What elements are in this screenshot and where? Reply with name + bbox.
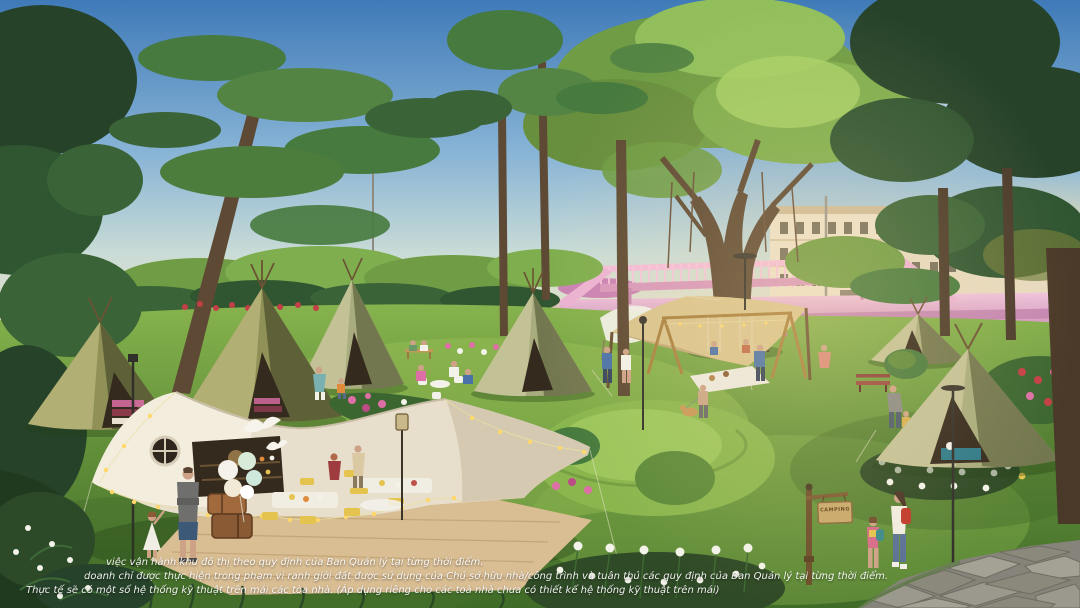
scene-illustration	[0, 0, 1080, 608]
round-window	[151, 437, 179, 465]
render-canvas: việc vận hành khu đô thị theo quy định c…	[0, 0, 1080, 608]
camping-sign-label: CAMPING	[819, 506, 851, 513]
suitcase-stack	[208, 494, 252, 538]
disclaimer-line-3: Thực tế sẽ có một số hệ thống kỹ thuật t…	[26, 585, 720, 597]
disclaimer-line-2: doanh chỉ được thực hiện trong phạm vi r…	[84, 571, 888, 583]
disclaimer-line-1: việc vận hành khu đô thị theo quy định c…	[106, 557, 483, 569]
warm-grade-overlay	[540, 0, 1080, 608]
